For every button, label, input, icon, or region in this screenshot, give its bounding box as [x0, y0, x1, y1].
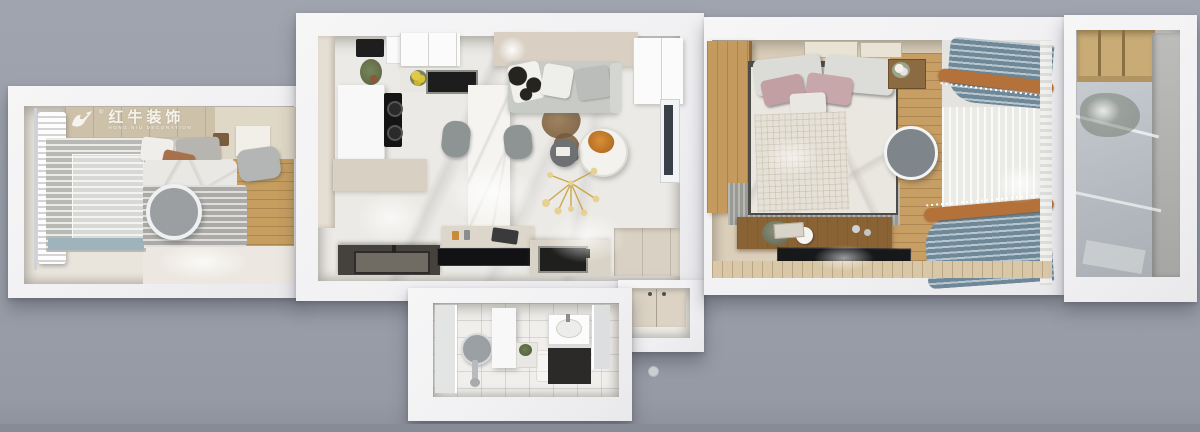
book-on-table [556, 147, 570, 156]
console-books [774, 222, 805, 239]
storage-cabinet-white [633, 38, 683, 104]
bull-logo-icon [70, 110, 94, 130]
wood-plank-wall [712, 261, 1052, 278]
upper-cabinet-white [400, 33, 460, 66]
burner-2 [387, 125, 403, 141]
sofa-pillow-gray [574, 65, 612, 101]
flowers-white [892, 62, 910, 78]
concrete-wall [1152, 33, 1180, 277]
cosmetic-item-1 [452, 231, 459, 240]
black-counter-tub [548, 345, 591, 384]
ac-vent-slot [664, 105, 673, 175]
bottom-shade-strip [0, 424, 1200, 432]
floor-light-glow [158, 244, 248, 280]
basin-faucet [566, 314, 570, 322]
sofa-armrest [610, 63, 622, 113]
shower-partition [492, 308, 516, 368]
bed-blue-trim [48, 238, 144, 250]
shoe-cabinet-seam [656, 289, 657, 327]
kitchen-left-wall [318, 36, 335, 228]
curtain-edge-gather [1040, 41, 1052, 285]
cabinet-handle-1 [648, 292, 652, 296]
brand-name-cn: 红牛装饰 [108, 110, 192, 125]
burner-1 [387, 101, 403, 117]
acrylic-panel [72, 154, 144, 250]
room-block-kitchen-living [296, 13, 704, 301]
room-block-left-bedroom: ® 红牛装饰 HONG NIU DECORATION [8, 86, 302, 298]
microwave-black [356, 39, 384, 57]
console-decor-1 [852, 225, 860, 233]
shoe-cabinet [628, 289, 686, 327]
floor-glow-3 [546, 213, 626, 263]
curtain-pole [34, 108, 37, 270]
ceiling-light [498, 36, 526, 64]
tall-cabinet-fridge [338, 85, 385, 169]
clay-pot [370, 75, 378, 83]
bedroom-glow-3 [814, 245, 874, 271]
vanity-sink-steel [354, 251, 430, 274]
faucet-1 [392, 245, 396, 253]
bedroom-glow-2 [996, 165, 1044, 203]
utility-glow [1086, 97, 1120, 125]
floor-glow-2 [356, 193, 426, 243]
shower-stand [472, 360, 478, 380]
bar-stool-right [502, 124, 533, 161]
overhead-cabinet-wood [1077, 30, 1155, 80]
cosmetic-item-2 [464, 230, 470, 240]
room-block-bathroom [408, 288, 632, 421]
tv-panel-flat [437, 248, 531, 266]
room-block-master-bedroom [704, 17, 1064, 295]
lower-counter-beige [333, 159, 427, 191]
bedroom-glow-1 [764, 137, 820, 177]
cabinet-handle-2 [662, 292, 666, 296]
papasan-chair [146, 184, 202, 240]
desk-chair [236, 145, 282, 183]
shower-base [470, 378, 480, 387]
mirror-strip [592, 305, 610, 369]
lemon-bowl [410, 70, 427, 86]
bathroom-plant [519, 344, 532, 356]
brand-name-en: HONG NIU DECORATION [108, 125, 192, 131]
room-block-utility-balcony [1064, 15, 1197, 302]
glass-door-panel [435, 305, 457, 393]
sofa-pillow-white [539, 63, 574, 100]
round-mirror-table [884, 126, 938, 180]
cabinet-divider-1 [1098, 30, 1101, 80]
floor-glow-1 [446, 163, 536, 223]
registered-mark: ® [99, 110, 103, 116]
cabinet-divider-2 [1122, 30, 1125, 80]
brand-watermark: ® 红牛装饰 HONG NIU DECORATION [70, 110, 192, 131]
background-dot [648, 366, 659, 377]
wall-frame-2 [860, 42, 902, 58]
console-decor-2 [864, 229, 871, 236]
sputnik-chandelier [538, 159, 604, 217]
floorplan-render: ® 红牛装饰 HONG NIU DECORATION [0, 0, 1200, 432]
